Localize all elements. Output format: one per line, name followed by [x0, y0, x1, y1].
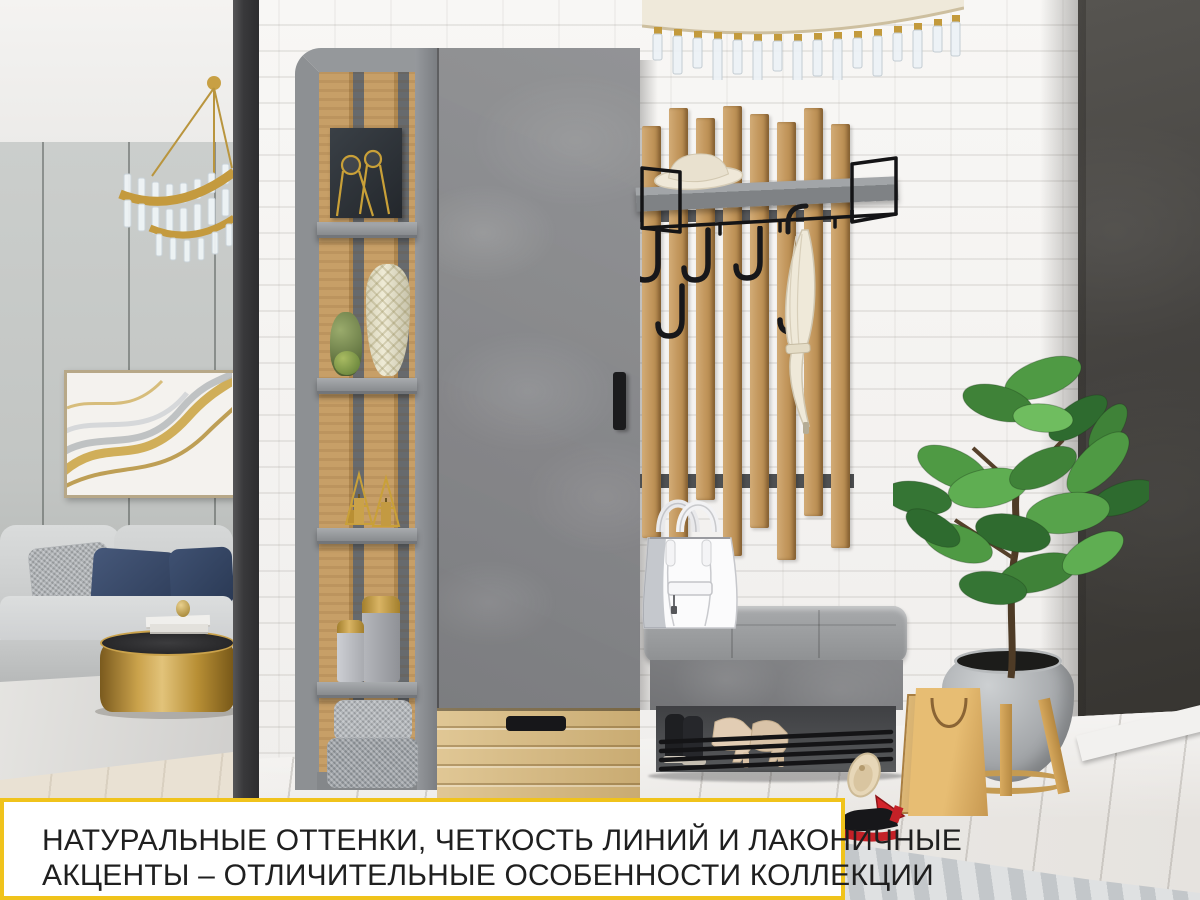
- concrete-cylinder-vase: [362, 596, 400, 682]
- umbrella-icon: [766, 200, 838, 435]
- gold-band: [362, 596, 400, 613]
- wall-art: [64, 370, 233, 498]
- pot-stand-leg: [1000, 704, 1012, 796]
- wardrobe-door: [437, 48, 640, 708]
- left-room-view: [0, 0, 233, 812]
- drawer-handle: [506, 716, 566, 731]
- concrete-cylinder-vase: [337, 620, 364, 682]
- white-handbag-icon: [636, 486, 742, 638]
- cream-textured-vase: [366, 264, 410, 376]
- shelf-board: [317, 222, 417, 238]
- crystal-chandelier-icon: [642, 0, 964, 80]
- gold-chandelier-icon: [116, 76, 233, 271]
- shelf-board: [317, 528, 417, 544]
- wardrobe-handle: [613, 372, 626, 430]
- fabric-storage-box: [334, 700, 412, 742]
- caption-banner: НАТУРАЛЬНЫЕ ОТТЕНКИ, ЧЕТКОСТЬ ЛИНИЙ И ЛА…: [0, 798, 845, 900]
- gold-ornament: [176, 600, 190, 617]
- gold-band: [337, 620, 364, 633]
- doorway-frame: [233, 0, 259, 812]
- gold-wire-decor-icon: [333, 148, 393, 220]
- decor-apple: [334, 351, 360, 375]
- caption-line-2: АКЦЕНТЫ – ОТЛИЧИТЕЛЬНЫЕ ОСОБЕННОСТИ КОЛЛ…: [42, 858, 829, 893]
- cushion-seam: [818, 610, 820, 658]
- bench-base: [650, 660, 903, 710]
- hallway-furniture-scene: НАТУРАЛЬНЫЕ ОТТЕНКИ, ЧЕТКОСТЬ ЛИНИЙ И ЛА…: [0, 0, 1200, 900]
- shelf-board: [317, 378, 417, 394]
- gold-candle-lanterns-icon: [340, 466, 406, 528]
- shelf-unit-side-panel: [415, 48, 437, 790]
- paper-bag-handle-icon: [908, 688, 988, 748]
- wall-art-abstract-icon: [67, 373, 232, 489]
- caption-line-1: НАТУРАЛЬНЫЕ ОТТЕНКИ, ЧЕТКОСТЬ ЛИНИЙ И ЛА…: [42, 823, 829, 858]
- fiddle-leaf-plant-icon: [893, 348, 1149, 693]
- shelf-board: [317, 682, 417, 698]
- fabric-storage-box: [327, 738, 418, 788]
- books-stack: [150, 624, 208, 634]
